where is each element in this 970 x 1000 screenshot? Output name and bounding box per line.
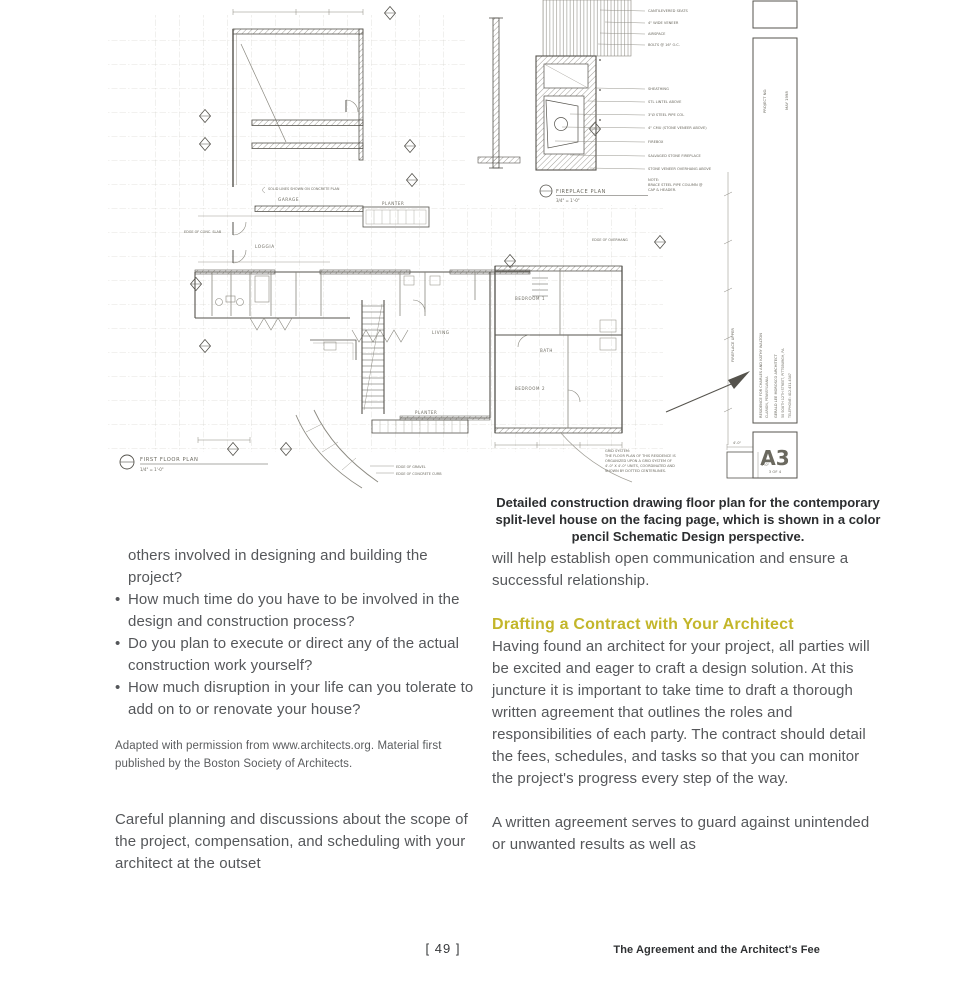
svg-text:FIREBOX: FIREBOX bbox=[648, 140, 664, 144]
plan-title-text: FIRST FLOOR PLAN bbox=[140, 457, 199, 463]
svg-text:STONE VENEER OVERHANG ABOVE: STONE VENEER OVERHANG ABOVE bbox=[648, 167, 712, 171]
room-label-living: LIVING bbox=[432, 330, 450, 335]
room-label-bedroom2: BEDROOM 2 bbox=[515, 386, 545, 391]
question-list: How much time do you have to be involved… bbox=[115, 589, 481, 721]
section-heading: Drafting a Contract with Your Architect bbox=[492, 614, 884, 636]
fireplace-title-text: FIREPLACE PLAN bbox=[556, 189, 606, 195]
svg-text:STL LINTEL ABOVE: STL LINTEL ABOVE bbox=[648, 100, 682, 104]
svg-text:ORGANIZED UPON A GRID SYSTEM O: ORGANIZED UPON A GRID SYSTEM OF bbox=[605, 459, 672, 463]
note-solid: SOLID LINES SHOWN ON CONCRETE PLAN bbox=[268, 187, 340, 191]
svg-text:CANTILEVERED SEATS: CANTILEVERED SEATS bbox=[648, 9, 689, 13]
title-block: PROJECT NO. MAY 1998 RESIDENCE FOR CHARL… bbox=[753, 1, 797, 478]
room-label-planter-lower: PLANTER bbox=[415, 410, 437, 415]
svg-text:SALVAGED STONE FIREPLACE: SALVAGED STONE FIREPLACE bbox=[648, 154, 701, 158]
note-overhang: EDGE OF OVERHANG bbox=[592, 238, 628, 242]
titleblock-project: PROJECT NO. bbox=[762, 89, 767, 114]
body-paragraph: Careful planning and discussions about t… bbox=[115, 809, 481, 875]
svg-text:BRACE STEEL PIPE COLUMN @: BRACE STEEL PIPE COLUMN @ bbox=[648, 183, 703, 187]
plan-title: FIRST FLOOR PLAN 1/4" = 1'-0" bbox=[120, 455, 268, 472]
room-label-bath: BATH bbox=[540, 348, 553, 353]
body-paragraph: will help establish open communication a… bbox=[492, 548, 884, 592]
plan-scale-text: 1/4" = 1'-0" bbox=[140, 467, 164, 472]
svg-text:SHEATHING: SHEATHING bbox=[648, 87, 669, 91]
titleblock-phone: TELEPHONE: 412.431.4347 bbox=[788, 373, 792, 419]
attribution-note: Adapted with permission from www.archite… bbox=[115, 737, 481, 773]
note-slab: EDGE OF CONC. SLAB bbox=[184, 230, 222, 234]
dim-rotated-label: FIREPLACE UPPER bbox=[730, 328, 735, 362]
svg-text:AIRSPACE: AIRSPACE bbox=[648, 32, 666, 36]
titleblock-residence: RESIDENCE FOR CHARLES AND KATHY WALTON bbox=[759, 333, 763, 418]
note-gravel: EDGE OF GRAVEL bbox=[396, 465, 426, 469]
construction-drawing-figure: FIREPLACE UPPER bbox=[100, 0, 800, 490]
room-label-planter-upper: PLANTER bbox=[382, 201, 404, 206]
right-column: will help establish open communication a… bbox=[492, 548, 884, 856]
left-column: others involved in designing and buildin… bbox=[115, 545, 481, 875]
list-item: How much disruption in your life can you… bbox=[115, 677, 481, 721]
svg-text:3"Ø STEEL PIPE COL: 3"Ø STEEL PIPE COL bbox=[648, 112, 684, 117]
titleblock-architect: GERALD LEE MOROSCO ARCHITECT bbox=[774, 353, 778, 418]
svg-text:CAP & HEADER.: CAP & HEADER. bbox=[648, 188, 676, 192]
running-footer: The Agreement and the Architect's Fee bbox=[600, 944, 820, 956]
titleblock-address: 50 SOUTH 12TH STREET, PITTSBURGH, PA bbox=[781, 348, 785, 418]
book-page: FIREPLACE UPPER bbox=[0, 0, 970, 1000]
page-number: [ 49 ] bbox=[398, 941, 488, 956]
room-label-garage: GARAGE bbox=[278, 197, 299, 202]
svg-text:BOLTS @ 16" O.C.: BOLTS @ 16" O.C. bbox=[648, 43, 680, 47]
figure-caption: Detailed construction drawing floor plan… bbox=[492, 494, 884, 545]
titleblock-location: CLARION, PENNSYLVANIA bbox=[765, 376, 769, 418]
svg-text:4'-0" X 4'-0" UNITS, COORDINAT: 4'-0" X 4'-0" UNITS, COORDINATED AND bbox=[605, 464, 675, 468]
body-paragraph: Having found an architect for your proje… bbox=[492, 636, 884, 790]
sheet-of: 3 OF 4 bbox=[769, 469, 782, 474]
svg-text:THE FLOOR PLAN OF THIS RESIDEN: THE FLOOR PLAN OF THIS RESIDENCE IS bbox=[604, 454, 676, 458]
intro-continuation: others involved in designing and buildin… bbox=[115, 545, 481, 589]
list-item: Do you plan to execute or direct any of … bbox=[115, 633, 481, 677]
body-paragraph: A written agreement serves to guard agai… bbox=[492, 812, 884, 856]
svg-text:GRID SYSTEM:: GRID SYSTEM: bbox=[605, 449, 630, 453]
north-arrow-sketch bbox=[666, 371, 750, 412]
svg-text:SHOWN BY DOTTED CENTERLINES.: SHOWN BY DOTTED CENTERLINES. bbox=[605, 469, 666, 473]
svg-text:NOTE:: NOTE: bbox=[648, 178, 659, 182]
note-curb: EDGE OF CONCRETE CURB bbox=[396, 472, 442, 476]
fireplace-plan-detail: CANTILEVERED SEATS 4" WIDE VENEER AIRSPA… bbox=[478, 0, 712, 203]
room-label-loggia: LOGGIA bbox=[255, 244, 275, 249]
fireplace-notes: CANTILEVERED SEATS 4" WIDE VENEER AIRSPA… bbox=[648, 9, 712, 192]
unit-dim-h: 4'-0" bbox=[733, 441, 741, 445]
sheet-number: A3 bbox=[760, 446, 789, 470]
svg-text:4" CMU (STONE VENEER ABOVE): 4" CMU (STONE VENEER ABOVE) bbox=[648, 126, 707, 130]
svg-text:4" WIDE VENEER: 4" WIDE VENEER bbox=[648, 21, 679, 25]
list-item: How much time do you have to be involved… bbox=[115, 589, 481, 633]
room-label-bedroom1: BEDROOM 1 bbox=[515, 296, 545, 301]
titleblock-date: MAY 1998 bbox=[784, 91, 789, 110]
fireplace-scale-text: 3/4" = 1'-0" bbox=[556, 198, 580, 203]
construction-drawing: FIREPLACE UPPER bbox=[100, 0, 800, 490]
